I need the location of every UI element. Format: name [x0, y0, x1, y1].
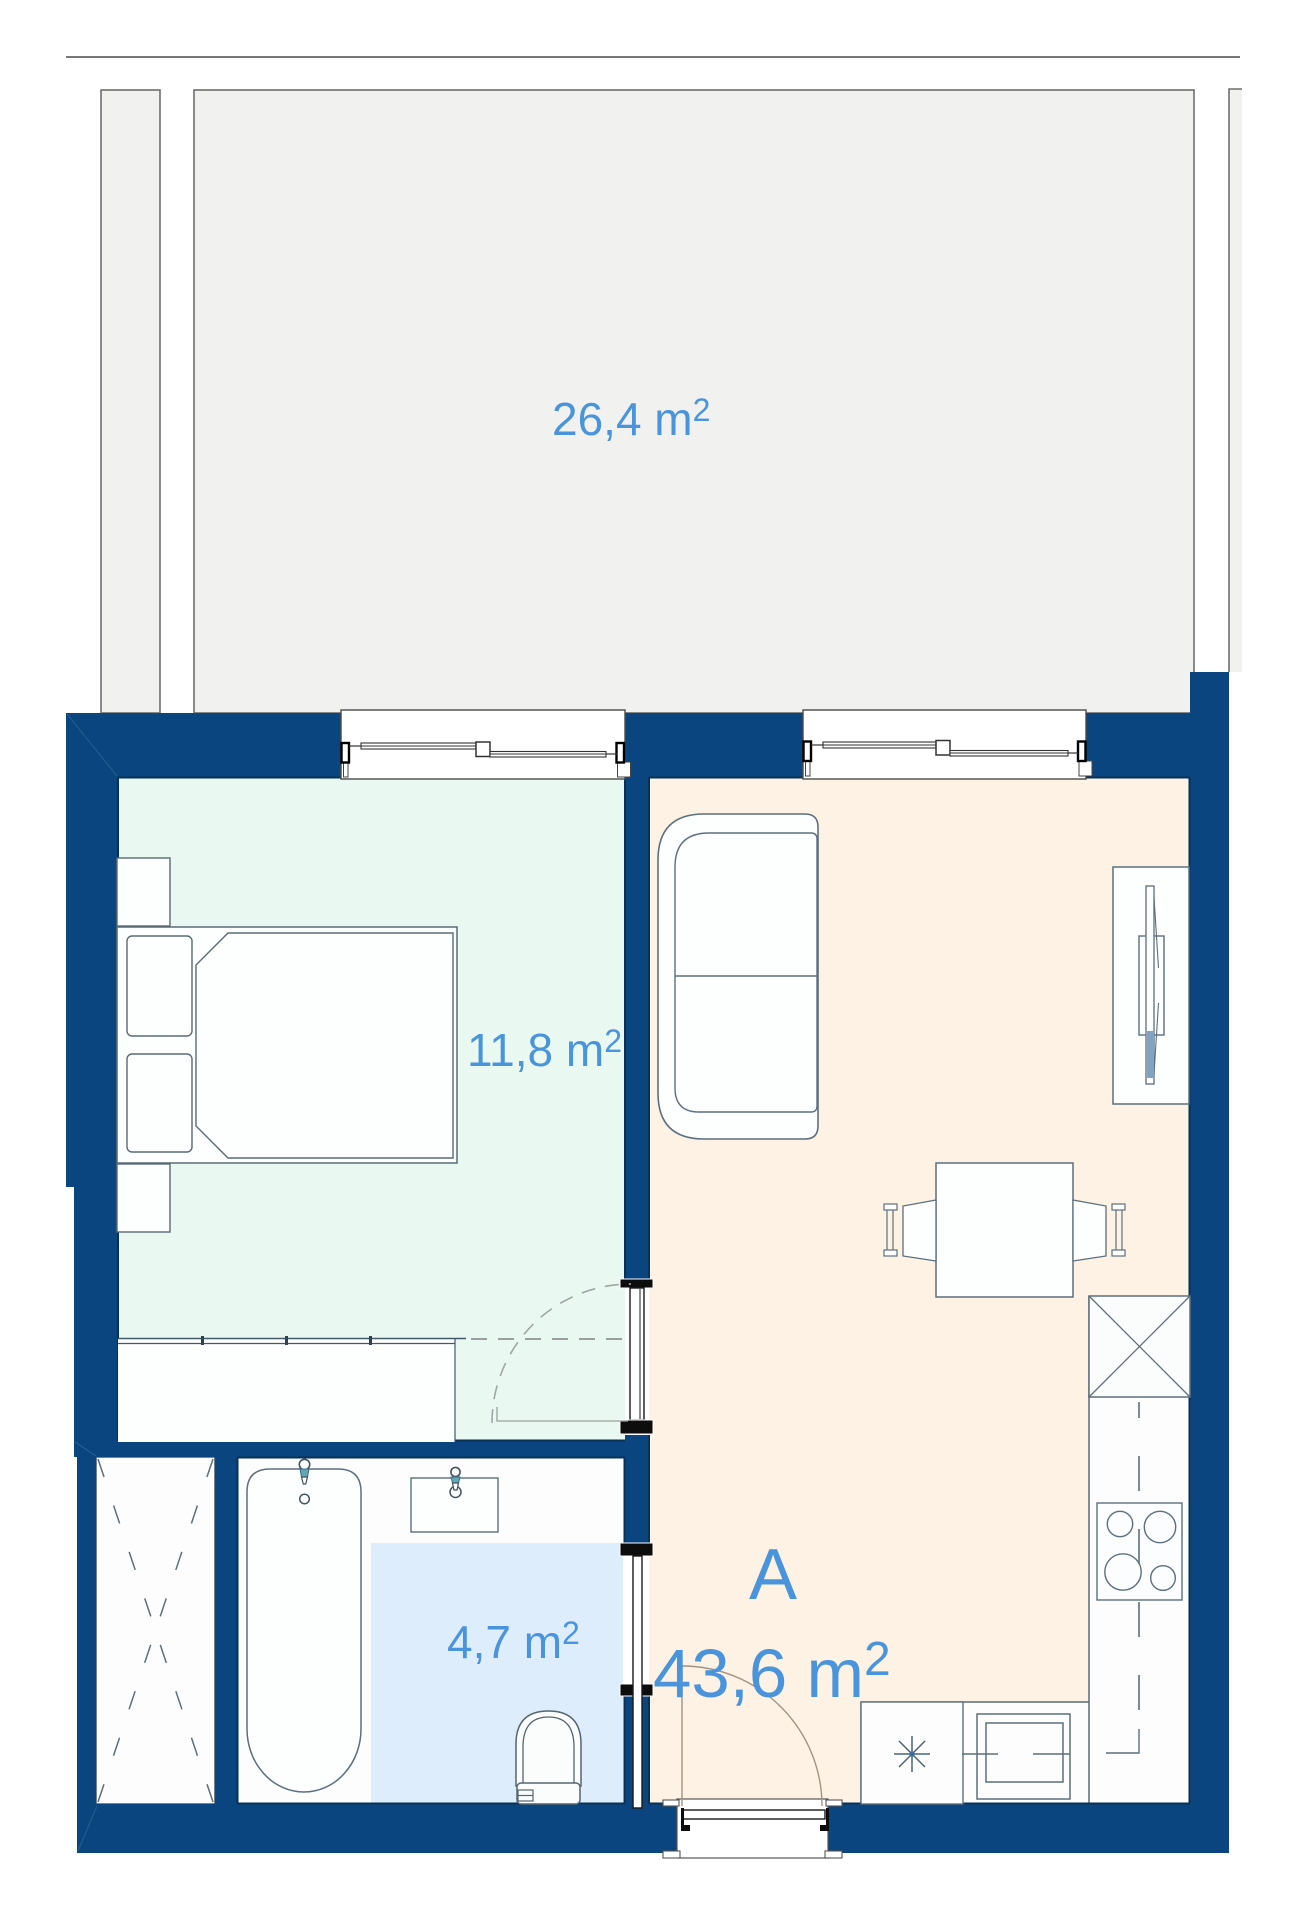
- svg-text:26,4 m2: 26,4 m2: [552, 392, 710, 445]
- svg-text:43,6 m2: 43,6 m2: [653, 1633, 891, 1712]
- svg-text:11,8 m2: 11,8 m2: [467, 1023, 622, 1076]
- svg-text:A: A: [749, 1535, 797, 1615]
- svg-text:4,7 m2: 4,7 m2: [447, 1615, 580, 1668]
